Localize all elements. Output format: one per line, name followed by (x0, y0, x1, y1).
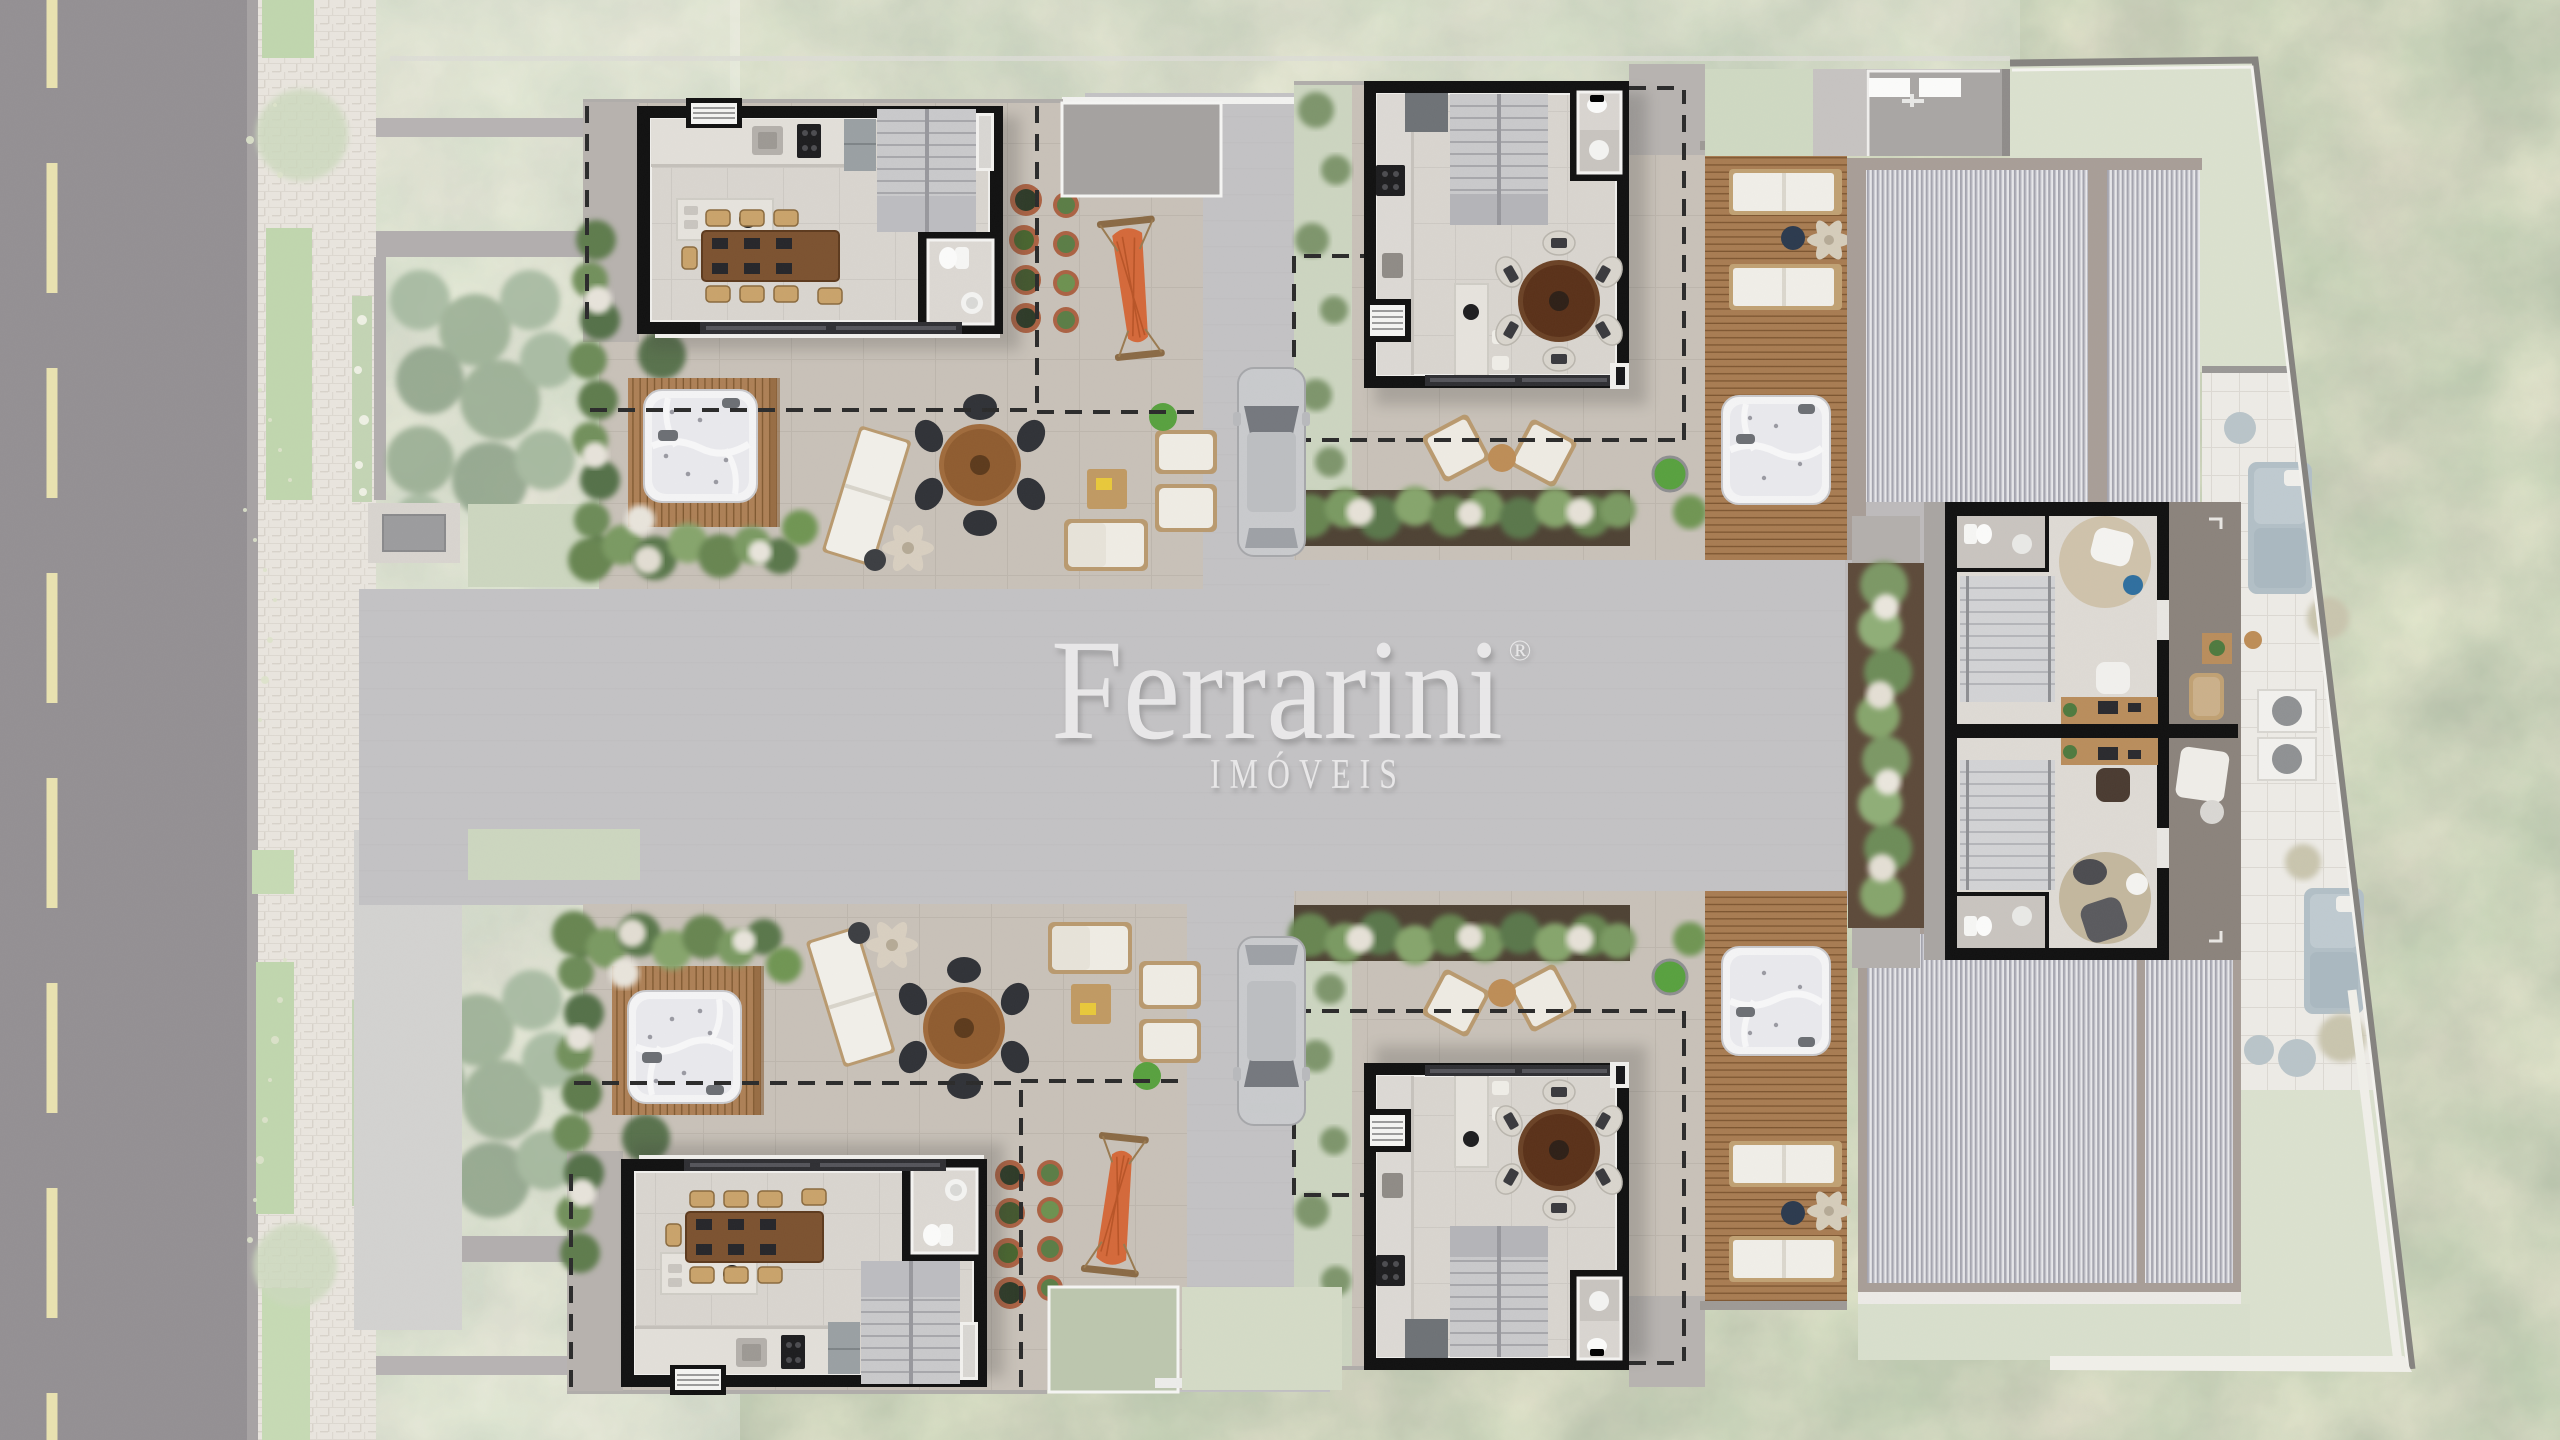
svg-text:Ferrarini: Ferrarini (1051, 611, 1503, 770)
svg-text:IMÓVEIS: IMÓVEIS (1210, 751, 1406, 798)
svg-text:®: ® (1509, 634, 1532, 667)
